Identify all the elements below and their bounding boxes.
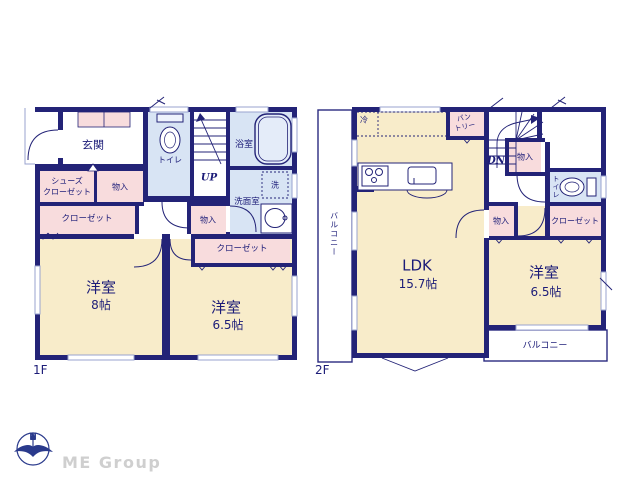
label-toilet-f1: トイレ <box>158 155 182 164</box>
label-balcony-left: バルコニー <box>329 212 338 257</box>
f2-room-fills <box>357 112 601 353</box>
label-ldk-size: 15.7帖 <box>399 278 438 292</box>
label-bedroom-f2-size: 6.5帖 <box>530 286 561 300</box>
label-storage-lower-f2: 物入 <box>493 216 509 225</box>
label-bedroom-f2-name: 洋室 <box>529 264 559 281</box>
label-bath: 浴室 <box>235 140 253 150</box>
label-bedroom2-size: 6.5帖 <box>212 319 243 333</box>
label-storage-upper-f2: 物入 <box>517 152 533 161</box>
label-closet-left-f1: クローゼット <box>61 215 112 225</box>
label-washroom: 洗面室 <box>234 198 260 208</box>
label-shoes-closet-2: クローゼット <box>43 187 91 196</box>
label-floor1: 1F <box>33 363 48 377</box>
label-storage-mid-f1: 物入 <box>200 215 216 224</box>
compass-north-label: N <box>29 432 37 442</box>
label-laundry: 洗 <box>271 180 279 189</box>
f2-ldk-door-gap <box>484 210 489 238</box>
label-ldk-name: LDK <box>402 257 432 274</box>
f1-washroom-door-gap <box>226 206 230 232</box>
label-shoes-closet-1: シューズ <box>51 176 83 185</box>
brand-text: ME Group <box>62 453 161 472</box>
label-balcony-bottom: バルコニー <box>523 341 568 351</box>
label-floor2: 2F <box>315 363 330 377</box>
label-stairs-up: UP <box>201 172 217 184</box>
label-storage-top-f1: 物入 <box>112 182 128 191</box>
label-closet-f2: クローゼット <box>551 216 599 225</box>
label-closet-right-f1: クローゼット <box>216 245 267 255</box>
label-bedroom2-name: 洋室 <box>211 299 241 316</box>
label-bedroom1-size: 8帖 <box>91 299 111 313</box>
floorplan-drawing <box>0 0 640 480</box>
label-fridge: 冷 <box>360 115 368 124</box>
label-genkan: 玄関 <box>82 140 104 153</box>
label-stairs-down: DN <box>487 155 505 167</box>
label-toilet-f2: トイレ <box>552 175 560 199</box>
label-bedroom1-name: 洋室 <box>86 279 116 296</box>
floorplan-page: 玄関 トイレ UP 浴室 洗 洗面室 シューズ クローゼット 物入 クローゼット… <box>0 0 640 480</box>
